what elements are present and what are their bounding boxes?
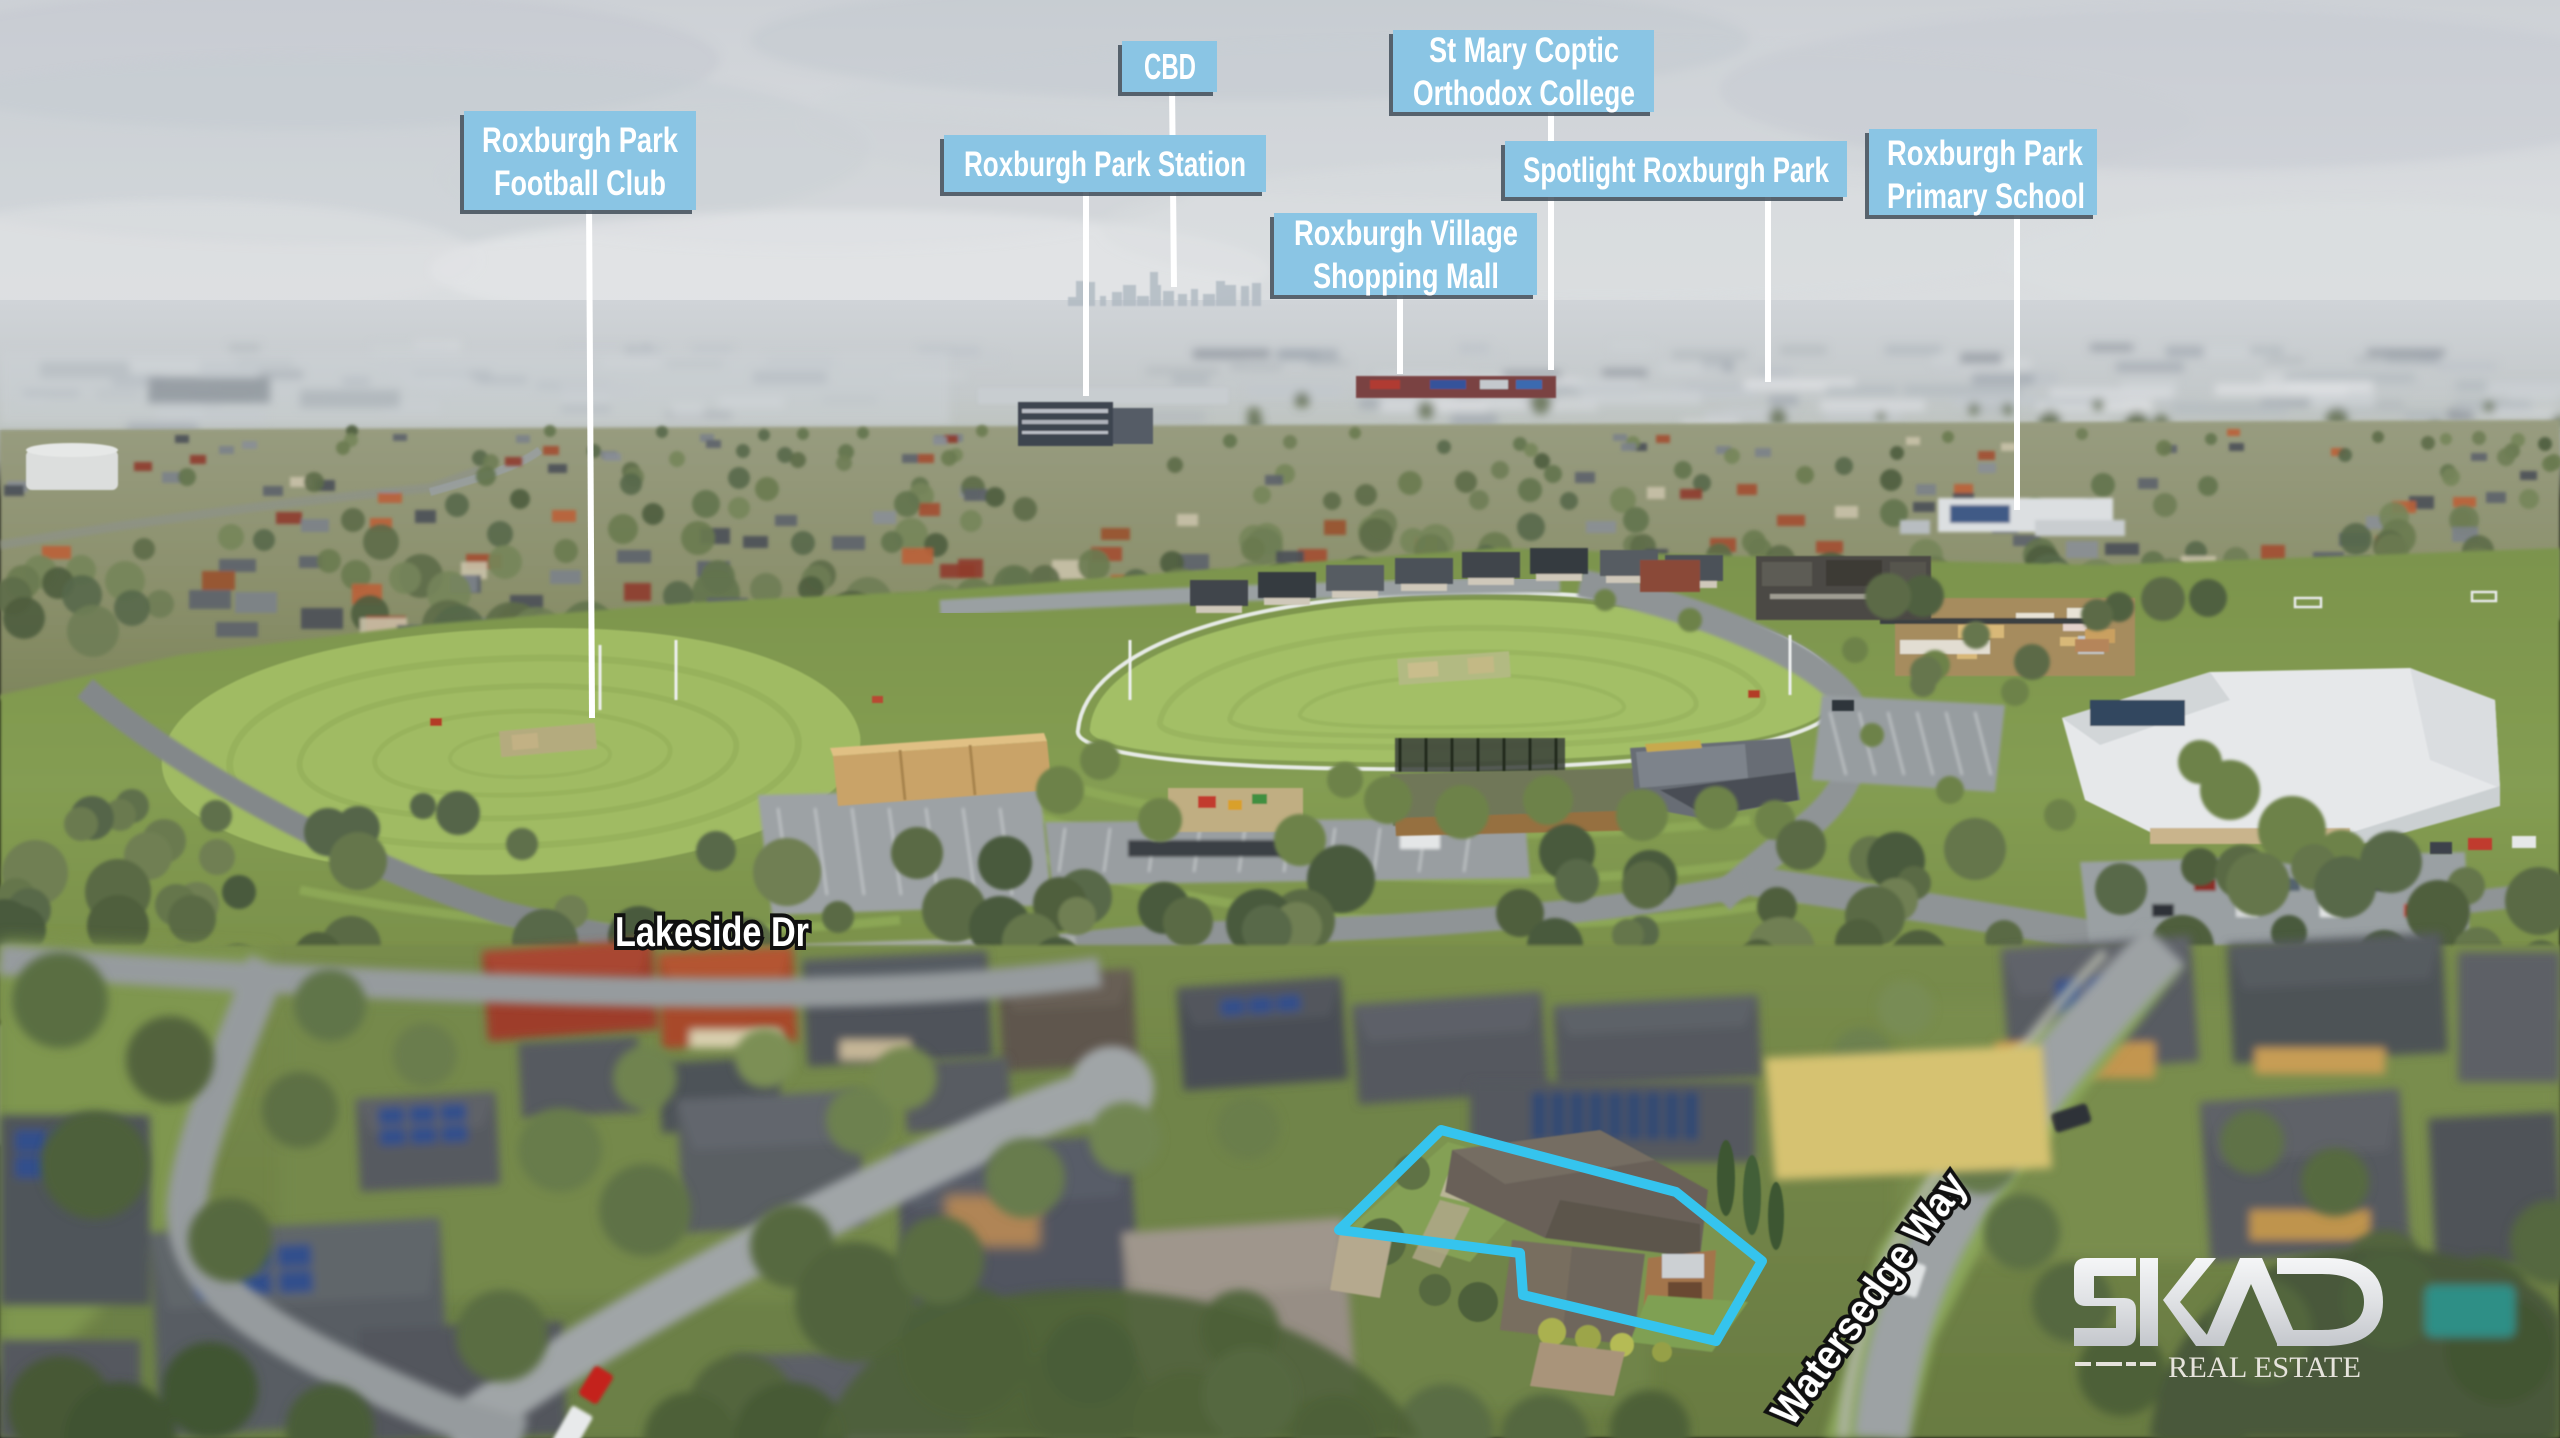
svg-text:Lakeside Dr: Lakeside Dr (615, 908, 809, 955)
svg-text:St Mary Coptic: St Mary Coptic (1429, 31, 1619, 70)
svg-text:Roxburgh Park: Roxburgh Park (482, 121, 678, 160)
svg-text:Spotlight Roxburgh Park: Spotlight Roxburgh Park (1523, 151, 1829, 190)
svg-text:Primary School: Primary School (1887, 177, 2085, 216)
svg-text:Roxburgh Park Station: Roxburgh Park Station (964, 145, 1246, 184)
svg-text:Football Club: Football Club (494, 164, 666, 203)
svg-text:Roxburgh Park: Roxburgh Park (1887, 134, 2083, 173)
svg-text:Orthodox College: Orthodox College (1413, 74, 1635, 113)
svg-text:Shopping Mall: Shopping Mall (1313, 257, 1499, 296)
svg-text:REAL ESTATE: REAL ESTATE (2168, 1351, 2361, 1384)
svg-text:Roxburgh Village: Roxburgh Village (1294, 214, 1518, 253)
svg-text:CBD: CBD (1144, 46, 1196, 87)
